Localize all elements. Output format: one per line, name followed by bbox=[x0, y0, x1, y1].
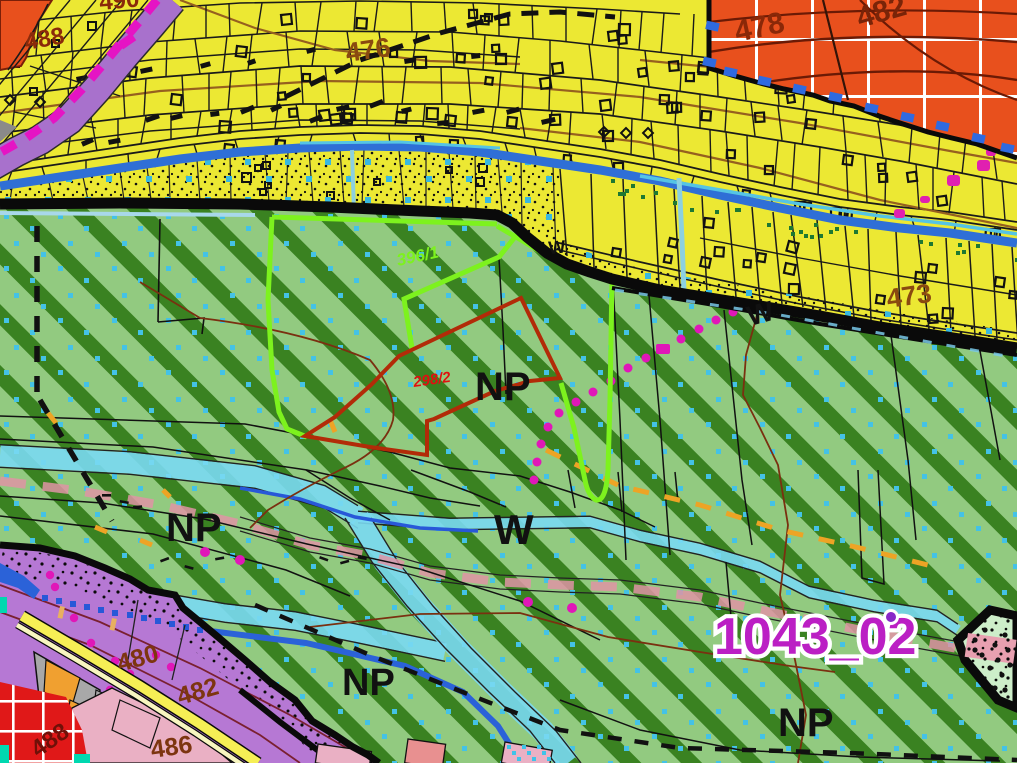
svg-text:NP: NP bbox=[342, 662, 395, 704]
svg-text:NP: NP bbox=[166, 506, 222, 550]
svg-text:476: 476 bbox=[344, 32, 393, 68]
svg-text:473: 473 bbox=[885, 278, 934, 314]
svg-text:W: W bbox=[494, 506, 534, 553]
svg-text:486: 486 bbox=[149, 730, 194, 763]
svg-text:NP: NP bbox=[778, 701, 834, 745]
svg-text:W: W bbox=[548, 237, 567, 258]
svg-text:NP: NP bbox=[475, 365, 531, 409]
